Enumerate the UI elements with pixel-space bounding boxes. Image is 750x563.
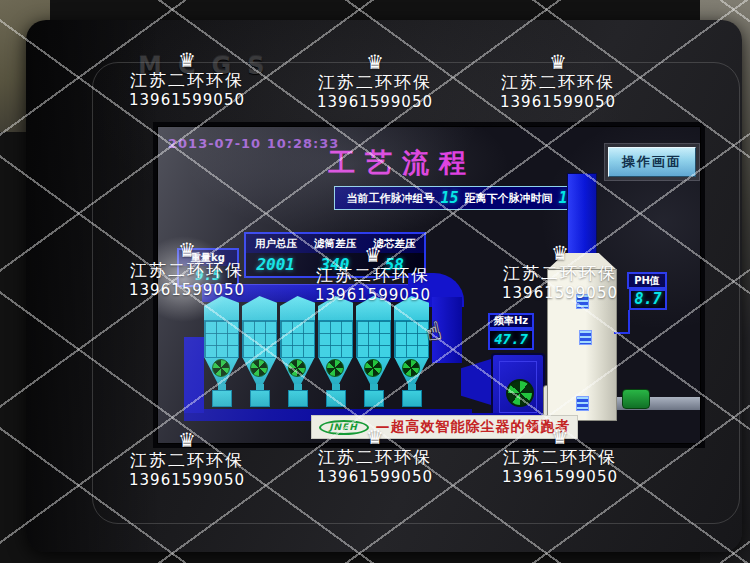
- exhaust-stack: [567, 173, 597, 257]
- pressure-panel: 用户总压 滤筒差压 滤芯差压 2001 340 58: [244, 232, 426, 278]
- pulse-group-label: 当前工作脉冲组号: [346, 191, 434, 206]
- pressure-panel-header: 用户总压 滤筒差压 滤芯差压: [246, 234, 424, 253]
- vendor-slogan: —超高效智能除尘器的领跑者: [376, 418, 571, 436]
- filter-module: [394, 296, 429, 407]
- fan-inlet-cone: [461, 359, 491, 405]
- frequency-value: 47.7: [488, 329, 534, 350]
- filter-modules: [204, 296, 429, 407]
- filter-module: [356, 296, 391, 407]
- pressure-col-label: 滤芯差压: [365, 234, 424, 253]
- pressure-col-label: 用户总压: [246, 234, 305, 253]
- inlet-duct: [184, 337, 204, 413]
- filter-module: [204, 296, 239, 407]
- module-body: [356, 320, 391, 358]
- filter-module: [242, 296, 277, 407]
- module-body: [318, 320, 353, 358]
- pressure-col-label: 滤筒差压: [305, 234, 364, 253]
- filter-module: [280, 296, 315, 407]
- module-base: [250, 390, 270, 407]
- module-base: [364, 390, 384, 407]
- pulse-status-bar: 当前工作脉冲组号 15 距离下个脉冲时间 1: [334, 186, 580, 210]
- pressure-value: 340: [305, 253, 364, 276]
- spray-level-indicator: [576, 396, 589, 411]
- circulation-pump: [622, 389, 650, 409]
- module-base: [212, 390, 232, 407]
- induced-draft-fan: [491, 353, 545, 421]
- spray-level-indicator: [579, 330, 592, 345]
- module-base: [288, 390, 308, 407]
- module-hood: [280, 296, 315, 320]
- operate-button-frame: 操作画面: [604, 143, 700, 181]
- pulse-group-value: 15: [440, 189, 458, 207]
- filter-module: [318, 296, 353, 407]
- module-body: [280, 320, 315, 358]
- weight-value: 9.5: [179, 266, 237, 285]
- rotary-valve-icon: [212, 359, 230, 377]
- ph-connector-line: [628, 310, 630, 334]
- module-base: [402, 390, 422, 407]
- scrubber-tower-top: [547, 253, 617, 270]
- ph-connector-line: [614, 332, 630, 334]
- module-body: [242, 320, 277, 358]
- pressure-value: 2001: [246, 253, 305, 276]
- hmi-touchscreen[interactable]: 2013-07-10 10:28:33 工艺流程 操作画面 当前工作脉冲组号 1…: [157, 126, 701, 444]
- module-hood: [318, 296, 353, 320]
- module-hood: [394, 296, 429, 320]
- datetime-display: 2013-07-10 10:28:33: [168, 136, 339, 151]
- rotary-valve-icon: [326, 359, 344, 377]
- weight-label: 重量kg: [179, 250, 237, 266]
- scrubber-tower: [547, 269, 617, 421]
- weight-readout: 重量kg 9.5: [177, 248, 239, 287]
- frequency-label: 频率Hz: [488, 313, 534, 329]
- page-title: 工艺流程: [328, 145, 476, 181]
- rotary-valve-icon: [288, 359, 306, 377]
- rotary-valve-icon: [402, 359, 420, 377]
- module-hood: [356, 296, 391, 320]
- vendor-logo: JNEH: [319, 420, 369, 435]
- pulse-next-label: 距离下个脉冲时间: [465, 191, 553, 206]
- fan-impeller-icon: [506, 379, 534, 407]
- spray-level-indicator: [576, 294, 589, 309]
- hmi-panel-photo: MCGS 2013-07-10 10:28:33 工艺流程 操作画面 当前工作脉…: [0, 0, 750, 563]
- vendor-banner: JNEH —超高效智能除尘器的领跑者: [311, 415, 578, 439]
- module-hood: [242, 296, 277, 320]
- module-hood: [204, 296, 239, 320]
- module-base: [326, 390, 346, 407]
- ph-label: PH值: [627, 272, 667, 289]
- ph-value: 8.7: [629, 289, 667, 310]
- rotary-valve-icon: [250, 359, 268, 377]
- operate-screen-button[interactable]: 操作画面: [608, 147, 696, 177]
- rotary-valve-icon: [364, 359, 382, 377]
- module-body: [204, 320, 239, 358]
- pressure-panel-values: 2001 340 58: [246, 253, 424, 276]
- hmi-bezel: MCGS 2013-07-10 10:28:33 工艺流程 操作画面 当前工作脉…: [26, 20, 742, 552]
